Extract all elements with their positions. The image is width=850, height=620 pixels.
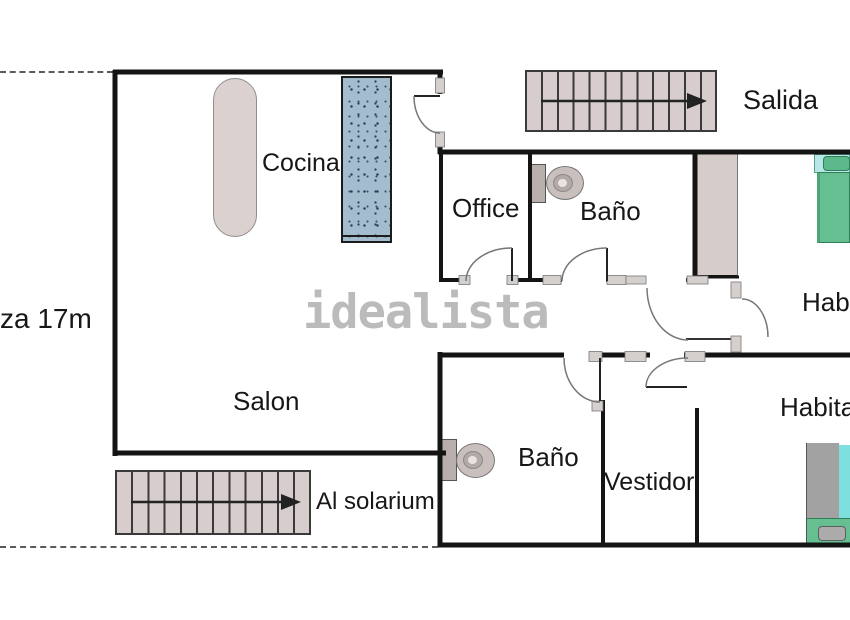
exterior-walls [113, 70, 850, 547]
solarium-label: Al solarium [316, 489, 435, 514]
room-label-vestidor: Vestidor [604, 469, 694, 495]
room-label-office: Office [452, 195, 519, 222]
floor-plan: idealista [0, 0, 850, 620]
room-label-habitacion-top: Habitación [802, 289, 850, 316]
room-label-bano-top: Baño [580, 198, 641, 225]
terrace-size-label: za 17m [0, 304, 92, 333]
floorplan-walls [0, 0, 850, 620]
room-label-bano-bottom: Baño [518, 444, 579, 471]
exit-label: Salida [743, 86, 818, 114]
room-label-cocina: Cocina [262, 150, 340, 176]
room-label-habitacion-bottom: Habitación [780, 394, 850, 421]
room-label-salon: Salon [233, 388, 300, 415]
